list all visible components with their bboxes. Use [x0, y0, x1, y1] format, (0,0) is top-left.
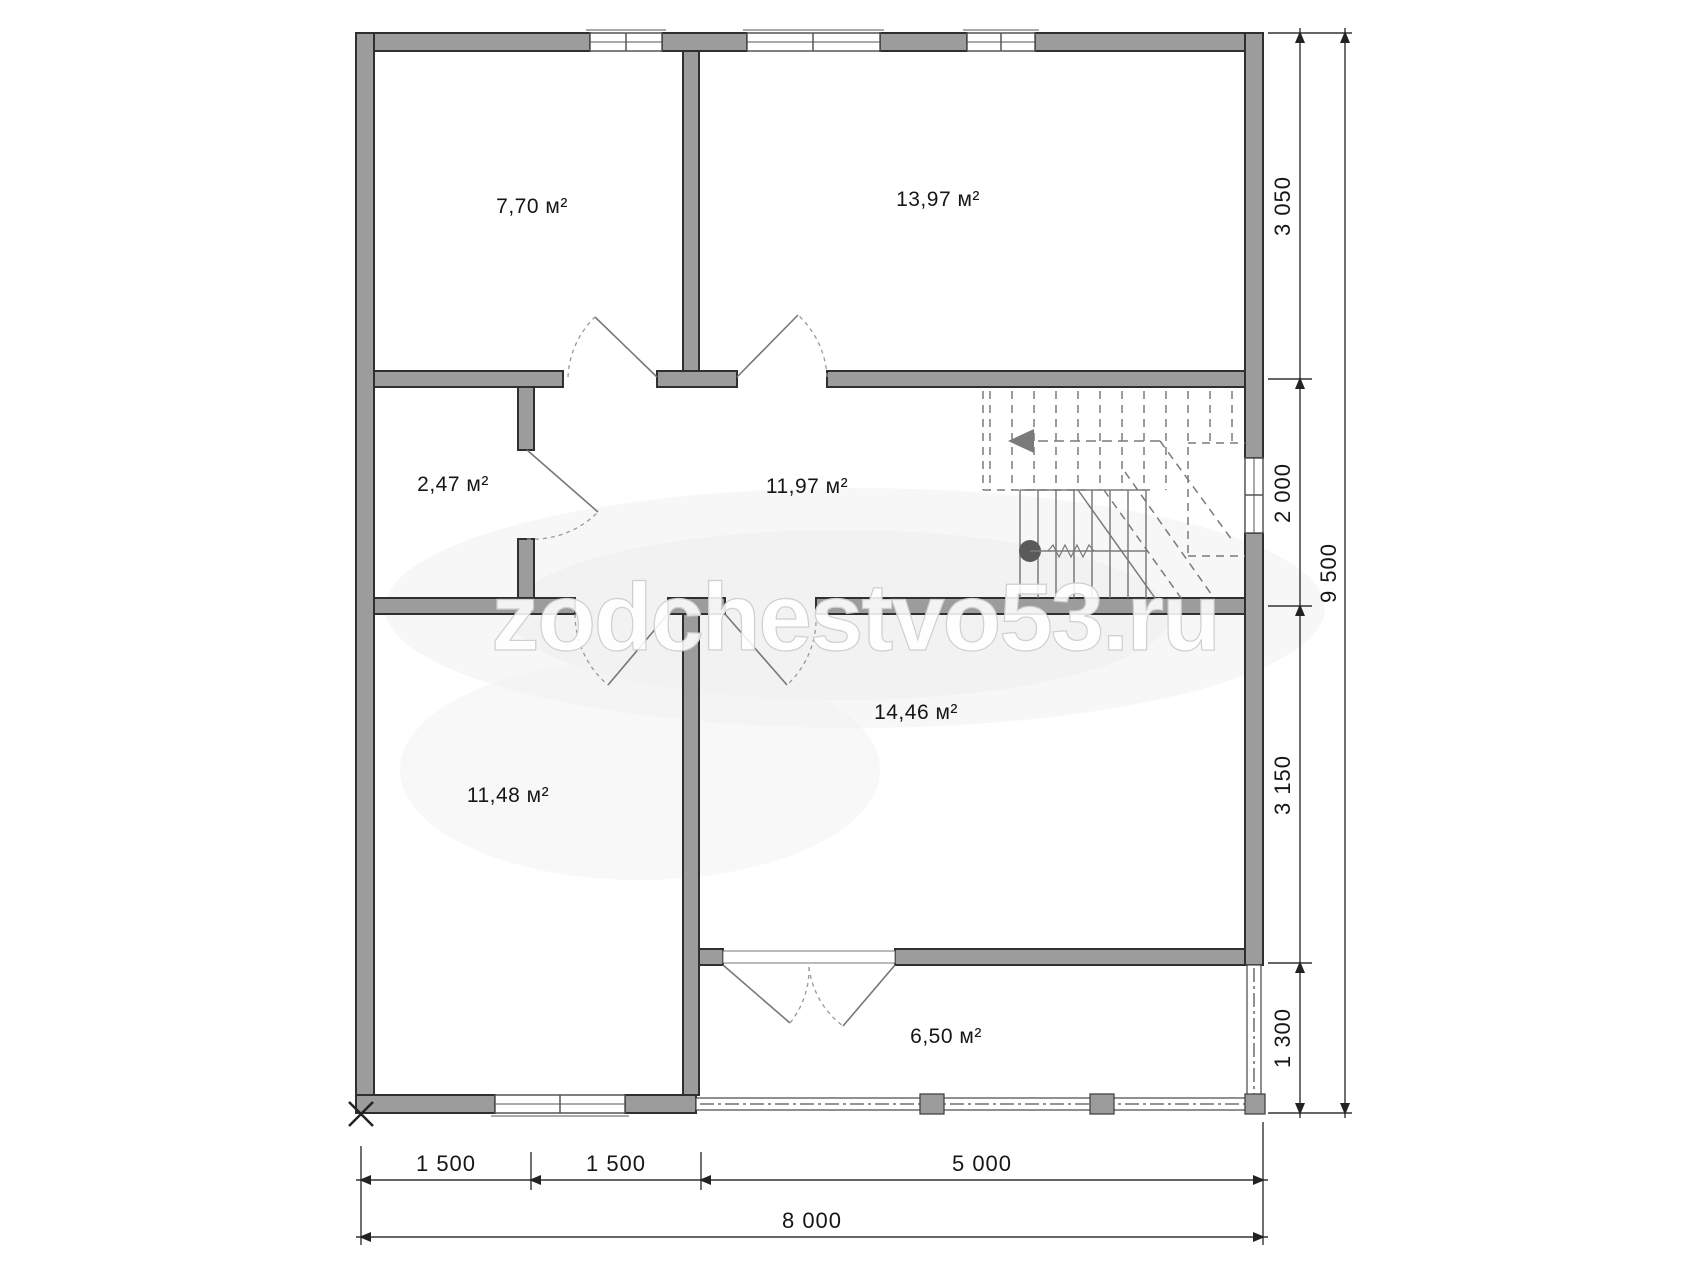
wall-interior-upper — [374, 371, 563, 387]
dim-label-bottom: 1 500 — [416, 1151, 476, 1176]
door-swing-arc — [809, 967, 843, 1026]
balcony-door-threshold — [723, 951, 895, 963]
room-area-label: 11,48 м² — [467, 784, 549, 807]
door-top-left-room — [568, 317, 657, 377]
dim-label-right: 2 000 — [1270, 463, 1295, 523]
door-leaf — [843, 965, 895, 1026]
door-swing-arc — [798, 315, 827, 377]
floor-plan-drawing: 7,70 м² 13,97 м² 2,47 м² 11,97 м² 11,48 … — [0, 0, 1707, 1280]
dim-label-right-total: 9 500 — [1316, 543, 1341, 603]
door-leaf — [527, 450, 598, 512]
wall-exterior-top — [880, 33, 967, 51]
dim-label-bottom: 1 500 — [586, 1151, 646, 1176]
wall-exterior-bottom — [356, 1095, 495, 1113]
door-swing-arc — [568, 317, 595, 377]
wall-exterior-top — [1035, 33, 1263, 51]
wall-balcony-top — [699, 949, 723, 965]
door-balcony-double — [723, 965, 895, 1026]
wall-interior-upper — [657, 371, 737, 387]
room-area-label: 13,97 м² — [896, 188, 980, 211]
room-area-label: 11,97 м² — [766, 475, 848, 498]
wall-balcony-top — [895, 949, 1245, 965]
room-area-label: 14,46 м² — [874, 701, 958, 724]
door-swing-arc — [790, 967, 809, 1023]
wall-divider-bottom — [683, 614, 699, 1095]
door-leaf — [737, 315, 798, 377]
railing-corner-post — [1245, 1094, 1265, 1114]
wall-interior-upper — [827, 371, 1245, 387]
dim-label-right: 1 300 — [1270, 1008, 1295, 1068]
door-leaf — [723, 965, 790, 1023]
railing-post — [1090, 1094, 1114, 1114]
room-area-label: 2,47 м² — [417, 473, 489, 496]
watermark: zodchestvo53.ru — [491, 564, 1219, 671]
wall-exterior-right — [1245, 533, 1263, 965]
wall-exterior-left — [356, 33, 374, 1113]
room-area-label: 6,50 м² — [910, 1025, 982, 1048]
wall-exterior-bottom — [625, 1095, 696, 1113]
door-top-right-room — [737, 315, 827, 377]
stairs-direction-arrow — [1008, 429, 1160, 453]
dim-label-right: 3 050 — [1270, 176, 1295, 236]
door-leaf — [595, 317, 657, 377]
wall-exterior-top — [356, 33, 590, 51]
wall-closet — [518, 387, 534, 450]
wall-exterior-top — [662, 33, 747, 51]
floor-plan-page: 7,70 м² 13,97 м² 2,47 м² 11,97 м² 11,48 … — [0, 0, 1707, 1280]
wall-divider-top — [683, 51, 699, 371]
dim-label-bottom: 5 000 — [952, 1151, 1012, 1176]
room-area-label: 7,70 м² — [496, 195, 568, 218]
railing-post — [920, 1094, 944, 1114]
dim-label-bottom-total: 8 000 — [782, 1208, 842, 1233]
dim-label-right: 3 150 — [1270, 755, 1295, 815]
wall-exterior-right — [1245, 33, 1263, 458]
